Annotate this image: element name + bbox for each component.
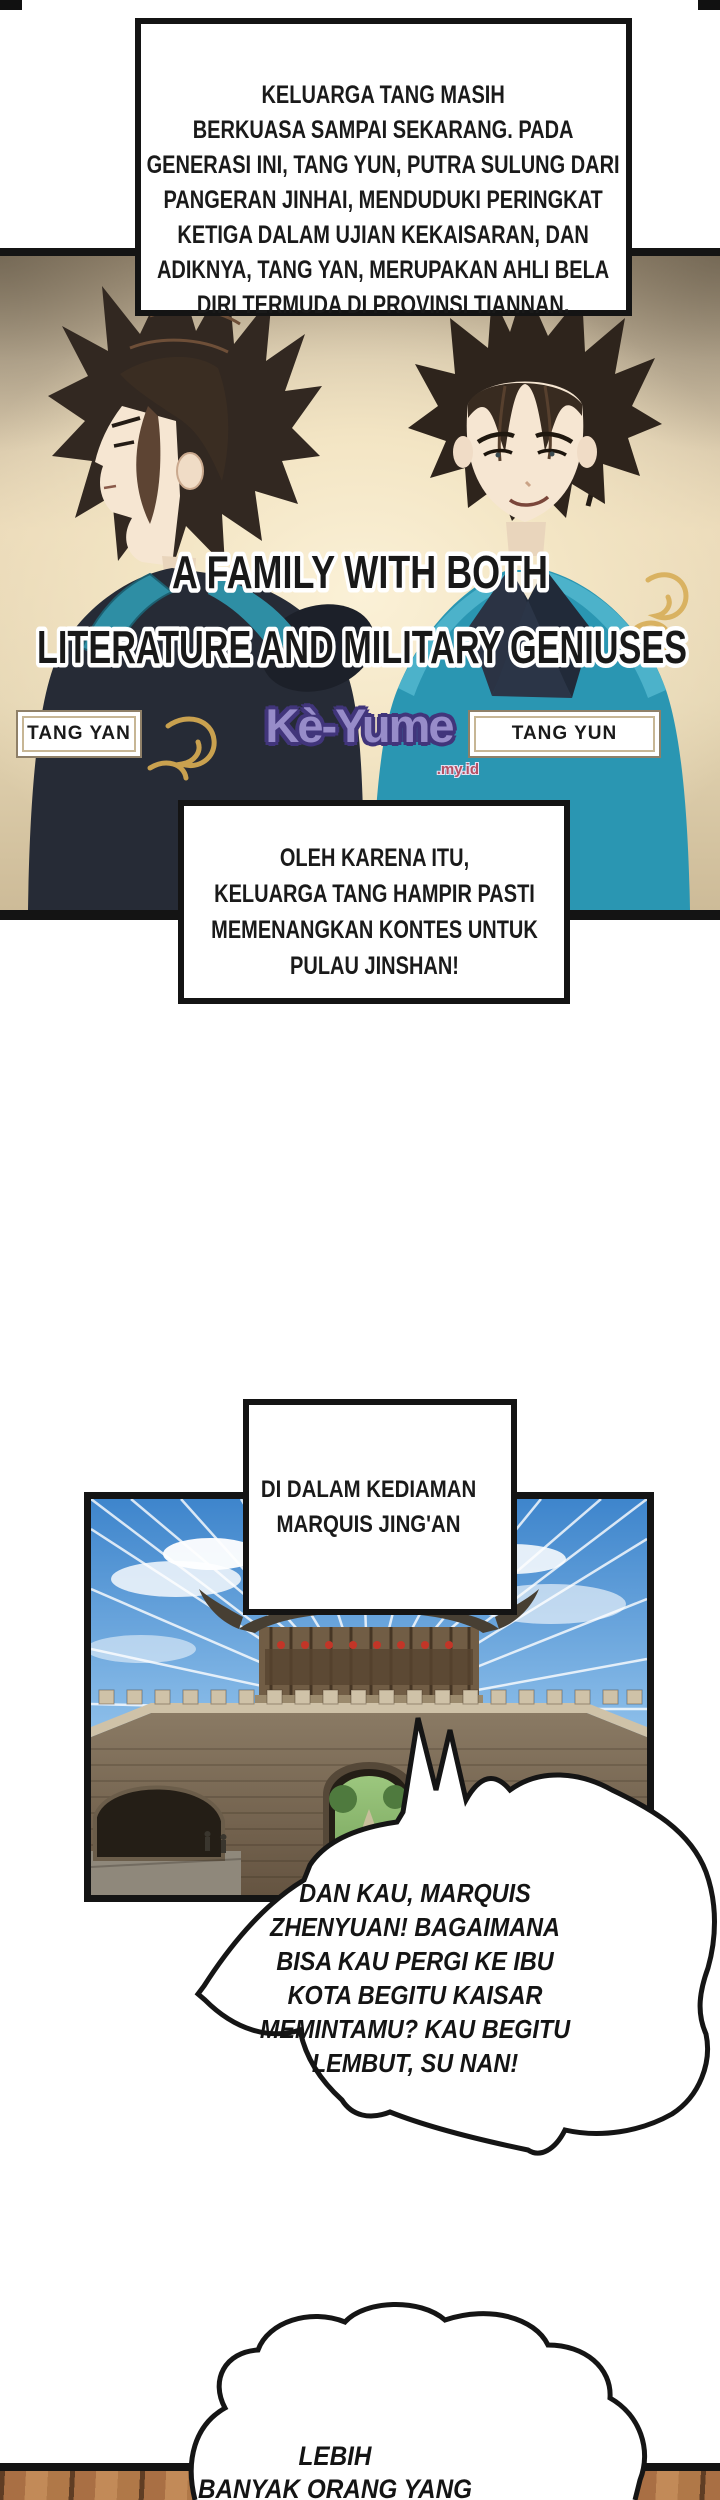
comic-page: KELUARGA TANG MASIH BERKUASA SAMPAI SEKA… bbox=[0, 0, 720, 2500]
name-label-tang-yan-text: TANG YAN bbox=[27, 723, 131, 745]
page-corner-tick-left bbox=[0, 0, 22, 10]
panel-title-line1: A FAMILY WITH BOTH bbox=[172, 546, 548, 598]
caption-box-location-text: DI DALAM KEDIAMAN MARQUIS JING'AN bbox=[247, 1472, 489, 1542]
narration-box-top-text: KELUARGA TANG MASIH BERKUASA SAMPAI SEKA… bbox=[141, 24, 626, 323]
name-label-tang-yan: TANG YAN bbox=[16, 710, 142, 758]
page-corner-tick-right bbox=[698, 0, 720, 10]
caption-box-location: DI DALAM KEDIAMAN MARQUIS JING'AN bbox=[243, 1399, 517, 1615]
narration-box-top: KELUARGA TANG MASIH BERKUASA SAMPAI SEKA… bbox=[135, 18, 632, 316]
narration-box-mid-text: OLEH KARENA ITU, KELUARGA TANG HAMPIR PA… bbox=[184, 806, 564, 984]
speech-bubble-main-text: DAN KAU, MARQUIS ZHENYUAN! BAGAIMANA BIS… bbox=[235, 1876, 595, 2080]
name-label-tang-yun-text: TANG YUN bbox=[512, 723, 617, 745]
watermark-suffix: .my.id bbox=[437, 761, 479, 778]
speech-bubble-bottom-text: LEBIH BANYAK ORANG YANG bbox=[160, 2440, 511, 2500]
narration-box-mid: OLEH KARENA ITU, KELUARGA TANG HAMPIR PA… bbox=[178, 800, 570, 1004]
watermark: Kè-Yume .my.id bbox=[245, 698, 473, 774]
watermark-logo-icon: Kè-Yume bbox=[265, 699, 452, 752]
name-label-tang-yun: TANG YUN bbox=[468, 710, 661, 758]
panel-title-line2: LITERATURE AND MILITARY GENIUSES bbox=[37, 621, 687, 673]
panel-title: A FAMILY WITH BOTH LITERATURE AND MILITA… bbox=[0, 536, 720, 676]
